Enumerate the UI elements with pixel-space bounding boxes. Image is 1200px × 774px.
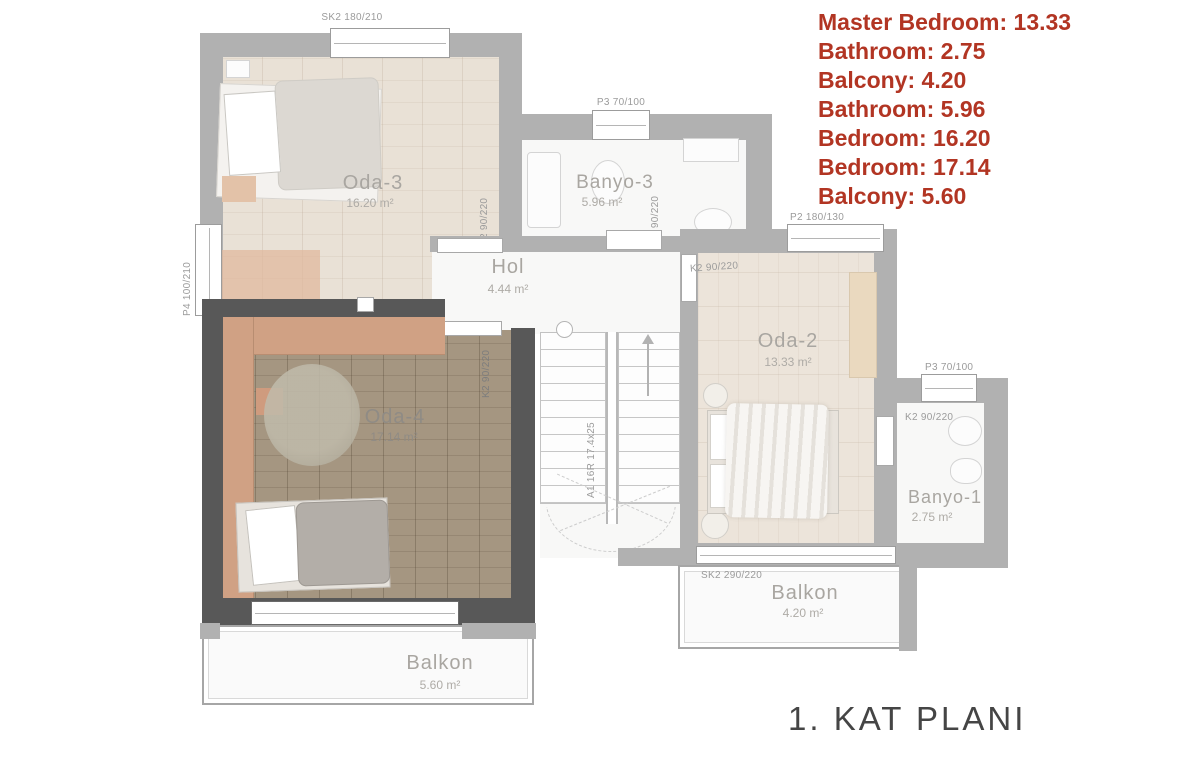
legend: Master Bedroom: 13.33 Bathroom: 2.75 Bal… [818, 8, 1071, 211]
oda4-area: 17.14 m² [344, 430, 444, 444]
balkon-right-area: 4.20 m² [768, 606, 838, 620]
oda2-nightstand-2 [701, 511, 729, 539]
oda2-door [681, 254, 697, 302]
oda3-area: 16.20 m² [330, 196, 410, 210]
stair-flight-right [618, 332, 680, 504]
legend-line-master-bedroom: Master Bedroom: 13.33 [818, 8, 1071, 37]
banyo1-toilet [950, 458, 982, 484]
oda2-window-code: P2 180/130 [790, 212, 882, 223]
banyo3-door [606, 230, 662, 250]
oda2-area: 13.33 m² [750, 355, 826, 369]
oda3-window [330, 28, 450, 58]
stair-code: A1 16R 17.4x25 [586, 338, 597, 498]
legend-line-bathroom-2: Bathroom: 5.96 [818, 95, 1071, 124]
oda2-blanket [725, 403, 829, 519]
oda3-window-code: SK2 180/210 [287, 12, 417, 23]
banyo1-door-code: K2 90/220 [905, 412, 953, 423]
hol-label: Hol [478, 256, 538, 279]
banyo1-area: 2.75 m² [902, 510, 962, 524]
stair-bottom-wall [618, 548, 680, 566]
oda3-door [437, 238, 503, 253]
stair-arrow-line [647, 344, 649, 396]
oda3-wall-right [499, 33, 522, 252]
balkon-right-window-code: SK2 290/220 [701, 570, 762, 581]
oda3-label: Oda-3 [328, 172, 418, 195]
oda3-desk [222, 250, 320, 306]
oda4-label: Oda-4 [340, 406, 450, 429]
oda4-wall-box [357, 297, 374, 312]
banyo3-window-code: P3 70/100 [585, 97, 657, 108]
legend-line-bedroom-1: Bedroom: 16.20 [818, 124, 1071, 153]
oda2-balcony-window [696, 546, 896, 564]
oda4-wall-left [202, 299, 223, 625]
balkon-left-label: Balkon [400, 652, 480, 675]
banyo3-counter [683, 138, 739, 162]
oda2-window [787, 224, 884, 252]
oda2-nightstand-1 [703, 383, 728, 408]
oda4-wall-right [511, 328, 535, 625]
legend-line-balcony-2: Balcony: 5.60 [818, 182, 1071, 211]
stair-newel [556, 321, 573, 338]
oda4-door [444, 321, 502, 336]
oda2-label: Oda-2 [748, 330, 828, 353]
oda4-balcony-window [251, 601, 459, 625]
balkon-right-label: Balkon [765, 582, 845, 605]
oda2-wardrobe [849, 272, 877, 378]
oda3-pillow [224, 91, 282, 176]
banyo1-sink [948, 416, 982, 446]
oda4-pillow [245, 505, 303, 586]
banyo1-door [876, 416, 894, 466]
balkon-left-stub-left [200, 623, 220, 639]
oda4-door-code: K2 90/220 [481, 336, 492, 398]
banyo1-window [921, 374, 977, 402]
oda4-bed [235, 497, 393, 594]
legend-line-bathroom-1: Bathroom: 2.75 [818, 37, 1071, 66]
banyo3-window [592, 110, 650, 140]
balkon-left-area: 5.60 m² [405, 678, 475, 692]
banyo1-wall-right [984, 378, 1008, 568]
legend-line-balcony-1: Balcony: 4.20 [818, 66, 1071, 95]
hol-area: 4.44 m² [478, 282, 538, 296]
stair-arrow-head [642, 334, 654, 344]
banyo3-area: 5.96 m² [562, 195, 642, 209]
plan-title: 1. KAT PLANI [788, 700, 1026, 738]
banyo1-window-code: P3 70/100 [925, 362, 985, 373]
legend-line-bedroom-2: Bedroom: 17.14 [818, 153, 1071, 182]
oda3-left-window-code: P4 100/210 [182, 226, 193, 316]
oda4-duvet [295, 499, 390, 586]
balkon-right-wall [899, 563, 917, 651]
banyo1-label: Banyo-1 [900, 487, 990, 508]
balkon-left-stub-right [462, 623, 536, 639]
floorplan-page: { "legend": { "color": "#b23523", "items… [0, 0, 1200, 774]
banyo3-shower [527, 152, 561, 228]
oda4-wardrobe-top [223, 317, 445, 355]
oda3-nightstand [222, 176, 256, 202]
